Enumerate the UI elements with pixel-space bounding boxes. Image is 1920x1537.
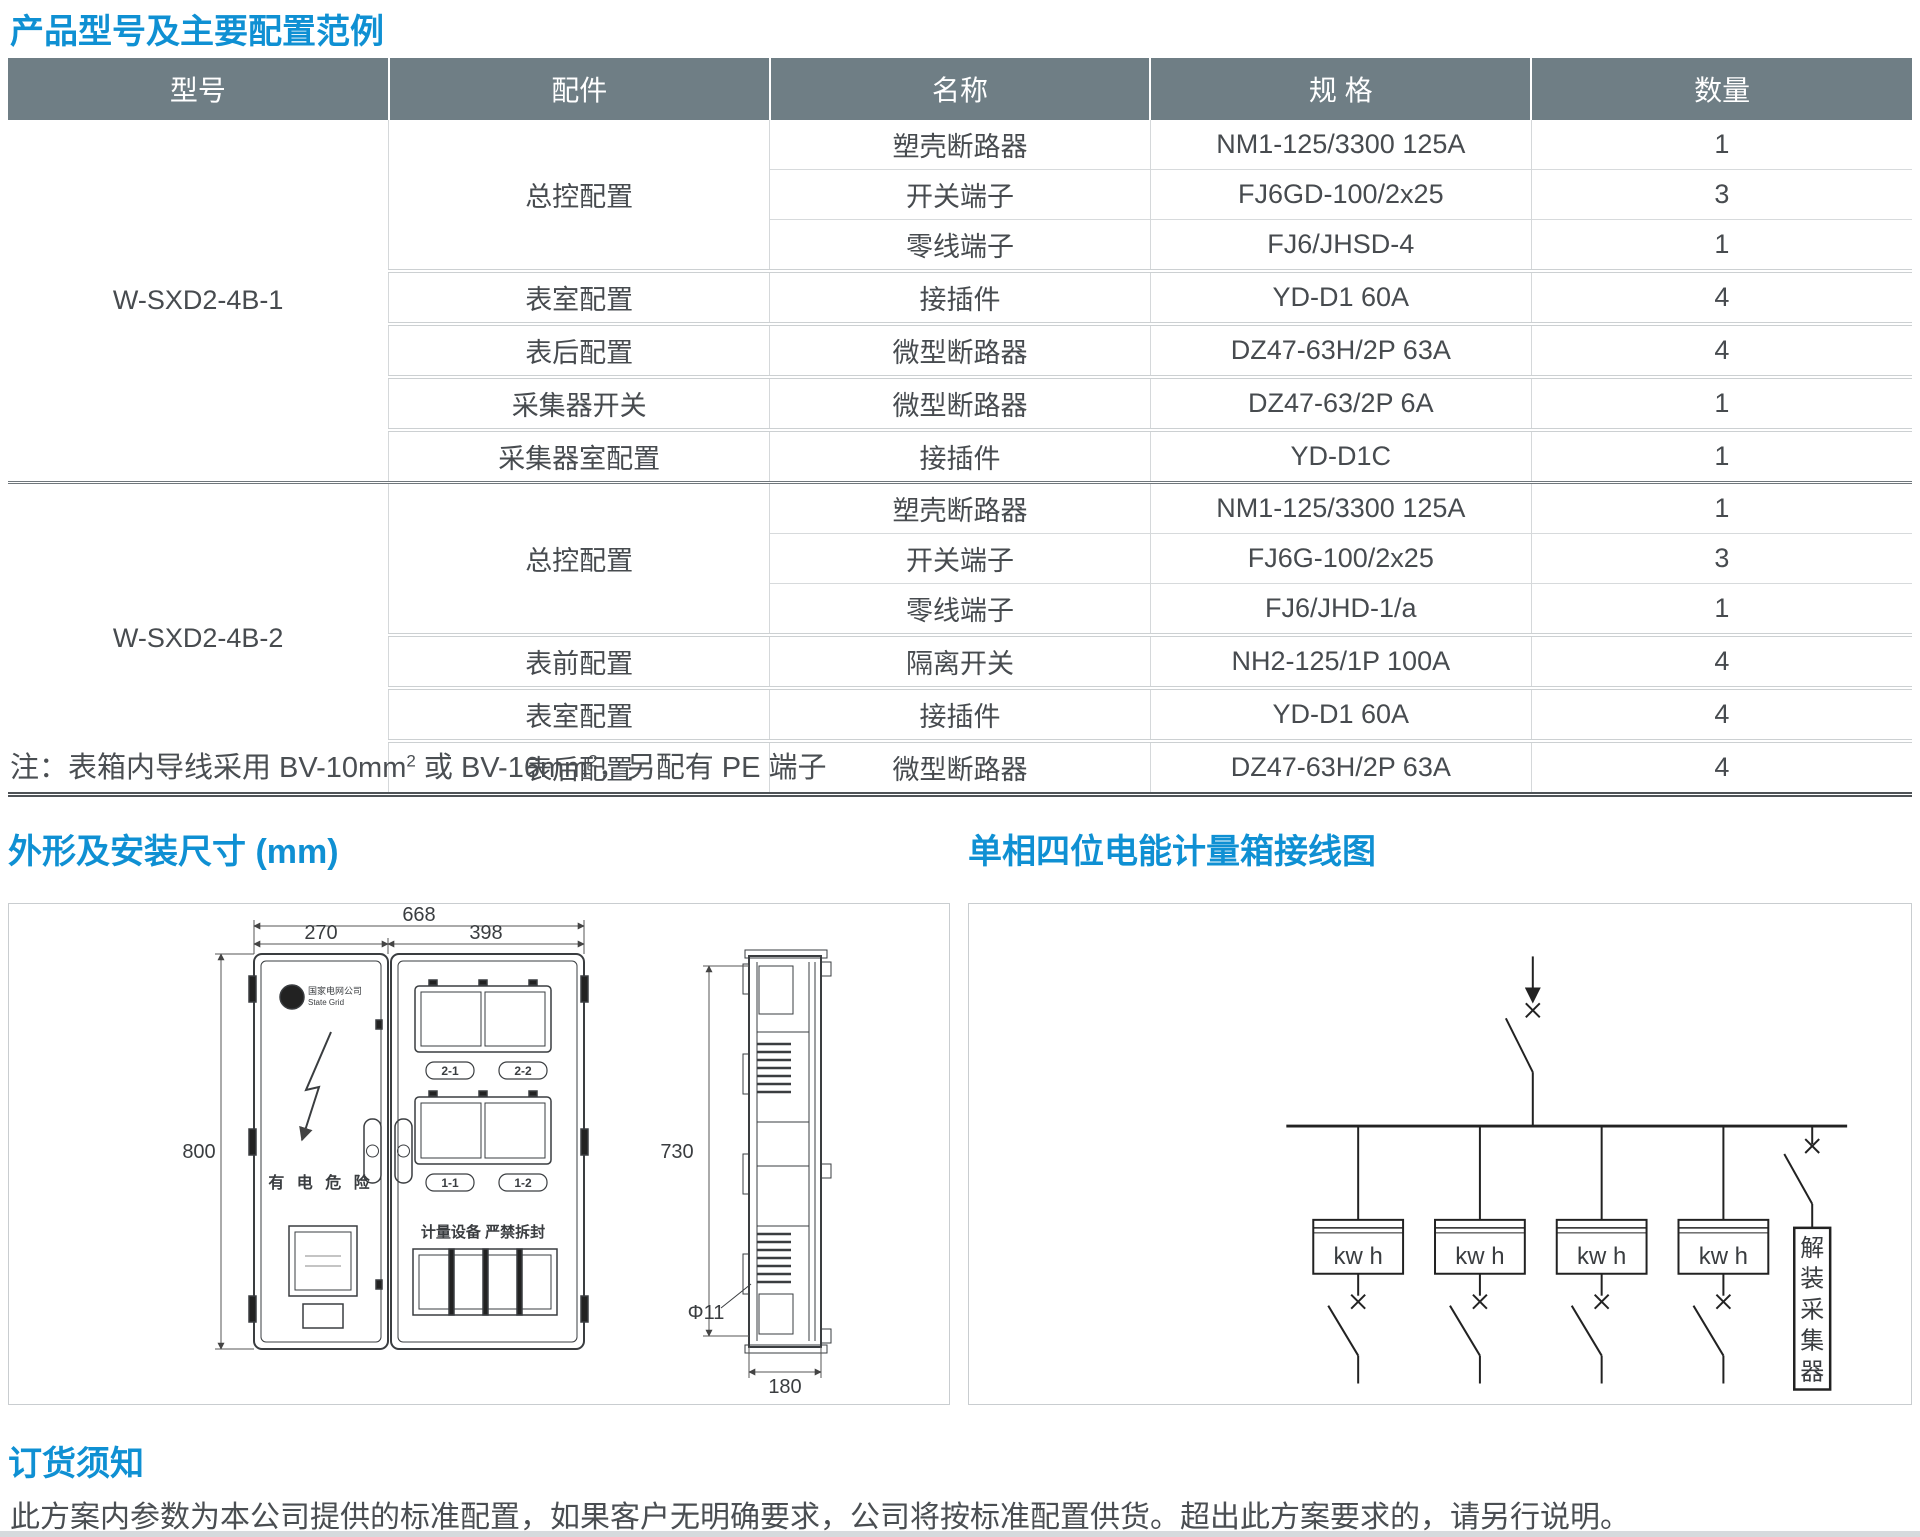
page-title: 产品型号及主要配置范例 bbox=[10, 4, 384, 53]
cell-spec: NM1-125/3300 125A bbox=[1150, 120, 1531, 170]
cell-name: 接插件 bbox=[770, 430, 1151, 483]
cell-name: 开关端子 bbox=[770, 170, 1151, 220]
cell-qty: 3 bbox=[1531, 170, 1912, 220]
dim-depth: 180 bbox=[768, 1376, 801, 1398]
kwh-label: kw h bbox=[1334, 1243, 1383, 1270]
connector-fins bbox=[757, 1044, 791, 1282]
cell-spec: NM1-125/3300 125A bbox=[1150, 483, 1531, 534]
cell-name: 隔离开关 bbox=[770, 635, 1151, 688]
cell-part: 总控配置 bbox=[389, 120, 770, 271]
cell-spec: FJ6/JHD-1/a bbox=[1150, 584, 1531, 636]
cell-qty: 1 bbox=[1531, 377, 1912, 430]
meter-label: 1-1 bbox=[441, 1176, 459, 1190]
cell-name: 接插件 bbox=[770, 688, 1151, 741]
kwh-label: kw h bbox=[1455, 1243, 1504, 1270]
cell-name: 塑壳断路器 bbox=[770, 120, 1151, 170]
main-breaker-symbol bbox=[1506, 956, 1540, 1126]
cell-part: 总控配置 bbox=[389, 483, 770, 636]
cell-spec: YD-D1 60A bbox=[1150, 271, 1531, 324]
cell-part: 采集器开关 bbox=[389, 377, 770, 430]
cabinet-dimension-drawing: 国家电网公司 State Grid 有 电 危 险 2-1 2-2 bbox=[9, 904, 949, 1404]
mounting-tab bbox=[821, 1329, 831, 1343]
ordering-section-title: 订货须知 bbox=[8, 1436, 144, 1485]
table-header-row: 型号 配件 名称 规 格 数量 bbox=[8, 58, 1912, 120]
table-row: W-SXD2-4B-2 总控配置 塑壳断路器 NM1-125/3300 125A… bbox=[8, 483, 1912, 534]
side-view-drawing bbox=[721, 950, 831, 1353]
hinge-icon bbox=[581, 976, 588, 1002]
collector-label: 解 装 采 集 器 bbox=[1800, 1235, 1824, 1386]
door-window bbox=[289, 1226, 357, 1296]
kwh-label: kw h bbox=[1577, 1243, 1626, 1270]
svg-text:采: 采 bbox=[1800, 1297, 1824, 1324]
header-model: 型号 bbox=[8, 58, 389, 120]
cell-model: W-SXD2-4B-1 bbox=[8, 120, 389, 483]
note-text: 或 BV-16mm bbox=[416, 752, 588, 784]
dim-hole-diameter: Φ11 bbox=[688, 1302, 725, 1324]
cell-qty: 4 bbox=[1531, 741, 1912, 795]
hinge-icon bbox=[249, 1296, 256, 1322]
cell-qty: 4 bbox=[1531, 635, 1912, 688]
datasheet-page: { "page": { "title": "产品型号及主要配置范例", "not… bbox=[0, 0, 1920, 1537]
wire-note: 注：表箱内导线采用 BV-10mm2 或 BV-16mm2，另配有 PE 端子 bbox=[10, 744, 827, 786]
hinge-icon bbox=[249, 976, 256, 1002]
cell-part: 表前配置 bbox=[389, 635, 770, 688]
mounting-tab bbox=[821, 1164, 831, 1178]
dim-total-width: 668 bbox=[402, 904, 435, 926]
cell-spec: FJ6GD-100/2x25 bbox=[1150, 170, 1531, 220]
dim-side-height: 730 bbox=[660, 1141, 693, 1163]
hinge-icon bbox=[581, 1129, 588, 1155]
meter-window-group bbox=[415, 986, 551, 1052]
logo-text: State Grid bbox=[308, 998, 344, 1007]
wiring-diagram: kw h kw h kw h kw h 解 装 采 集 器 bbox=[969, 904, 1911, 1404]
cell-name: 塑壳断路器 bbox=[770, 483, 1151, 534]
cell-spec: FJ6/JHSD-4 bbox=[1150, 220, 1531, 272]
header-part: 配件 bbox=[389, 58, 770, 120]
cell-spec: DZ47-63H/2P 63A bbox=[1150, 324, 1531, 377]
cell-part: 采集器室配置 bbox=[389, 430, 770, 483]
meter-label: 2-2 bbox=[514, 1064, 532, 1078]
cell-qty: 4 bbox=[1531, 324, 1912, 377]
cell-spec: YD-D1 60A bbox=[1150, 688, 1531, 741]
svg-text:器: 器 bbox=[1800, 1359, 1824, 1386]
meter-window-group bbox=[415, 1097, 551, 1164]
note-sup: 2 bbox=[406, 751, 415, 770]
cell-spec: NH2-125/1P 100A bbox=[1150, 635, 1531, 688]
cell-name: 接插件 bbox=[770, 271, 1151, 324]
seal-warning-label: 计量设备 严禁拆封 bbox=[421, 1223, 545, 1241]
lightning-bolt-icon bbox=[302, 1032, 331, 1140]
cell-part: 表后配置 bbox=[389, 324, 770, 377]
ordering-note-text: 此方案内参数为本公司提供的标准配置，如果客户无明确要求，公司将按标准配置供货。超… bbox=[10, 1492, 1630, 1536]
cell-name: 零线端子 bbox=[770, 584, 1151, 636]
wiring-section-title: 单相四位电能计量箱接线图 bbox=[968, 824, 1376, 873]
cell-spec: DZ47-63H/2P 63A bbox=[1150, 741, 1531, 795]
hinge-icon bbox=[249, 1129, 256, 1155]
dimensions-panel: 国家电网公司 State Grid 有 电 危 险 2-1 2-2 bbox=[8, 903, 950, 1405]
cell-name: 微型断路器 bbox=[770, 377, 1151, 430]
mounting-tab bbox=[821, 962, 831, 976]
front-view-drawing: 国家电网公司 State Grid 有 电 危 险 2-1 2-2 bbox=[249, 954, 588, 1349]
page-bottom-divider bbox=[0, 1531, 1920, 1537]
note-text: ，另配有 PE 端子 bbox=[598, 752, 827, 784]
cell-name: 开关端子 bbox=[770, 534, 1151, 584]
note-sup: 2 bbox=[588, 751, 597, 770]
logo-text: 国家电网公司 bbox=[308, 985, 362, 996]
header-qty: 数量 bbox=[1531, 58, 1912, 120]
cell-spec: FJ6G-100/2x25 bbox=[1150, 534, 1531, 584]
header-spec: 规 格 bbox=[1150, 58, 1531, 120]
svg-text:集: 集 bbox=[1800, 1328, 1824, 1355]
meter-label: 2-1 bbox=[441, 1064, 459, 1078]
configuration-table: 型号 配件 名称 规 格 数量 W-SXD2-4B-1 总控配置 塑壳断路器 N… bbox=[8, 58, 1912, 797]
table-row: W-SXD2-4B-1 总控配置 塑壳断路器 NM1-125/3300 125A… bbox=[8, 120, 1912, 170]
cell-name: 零线端子 bbox=[770, 220, 1151, 272]
cell-spec: DZ47-63/2P 6A bbox=[1150, 377, 1531, 430]
cell-part: 表室配置 bbox=[389, 271, 770, 324]
note-text: 注：表箱内导线采用 BV-10mm bbox=[10, 752, 406, 784]
cell-qty: 3 bbox=[1531, 534, 1912, 584]
cell-qty: 4 bbox=[1531, 688, 1912, 741]
svg-text:装: 装 bbox=[1800, 1266, 1824, 1293]
cell-part: 表室配置 bbox=[389, 688, 770, 741]
hinge-icon bbox=[581, 1296, 588, 1322]
meter-label: 1-2 bbox=[514, 1176, 532, 1190]
cell-spec: YD-D1C bbox=[1150, 430, 1531, 483]
wiring-panel: kw h kw h kw h kw h 解 装 采 集 器 bbox=[968, 903, 1912, 1405]
dim-right-width: 398 bbox=[469, 922, 502, 944]
cell-qty: 1 bbox=[1531, 120, 1912, 170]
dim-height: 800 bbox=[182, 1141, 215, 1163]
cell-qty: 1 bbox=[1531, 430, 1912, 483]
cell-qty: 1 bbox=[1531, 584, 1912, 636]
cell-qty: 4 bbox=[1531, 271, 1912, 324]
danger-label: 有 电 危 险 bbox=[268, 1173, 373, 1192]
cell-name: 微型断路器 bbox=[770, 324, 1151, 377]
state-grid-logo bbox=[280, 985, 304, 1009]
svg-text:解: 解 bbox=[1800, 1235, 1824, 1262]
kwh-label: kw h bbox=[1699, 1243, 1748, 1270]
cell-qty: 1 bbox=[1531, 483, 1912, 534]
dimensions-section-title: 外形及安装尺寸 (mm) bbox=[8, 824, 339, 873]
dim-left-width: 270 bbox=[304, 922, 337, 944]
cell-qty: 1 bbox=[1531, 220, 1912, 272]
header-name: 名称 bbox=[770, 58, 1151, 120]
